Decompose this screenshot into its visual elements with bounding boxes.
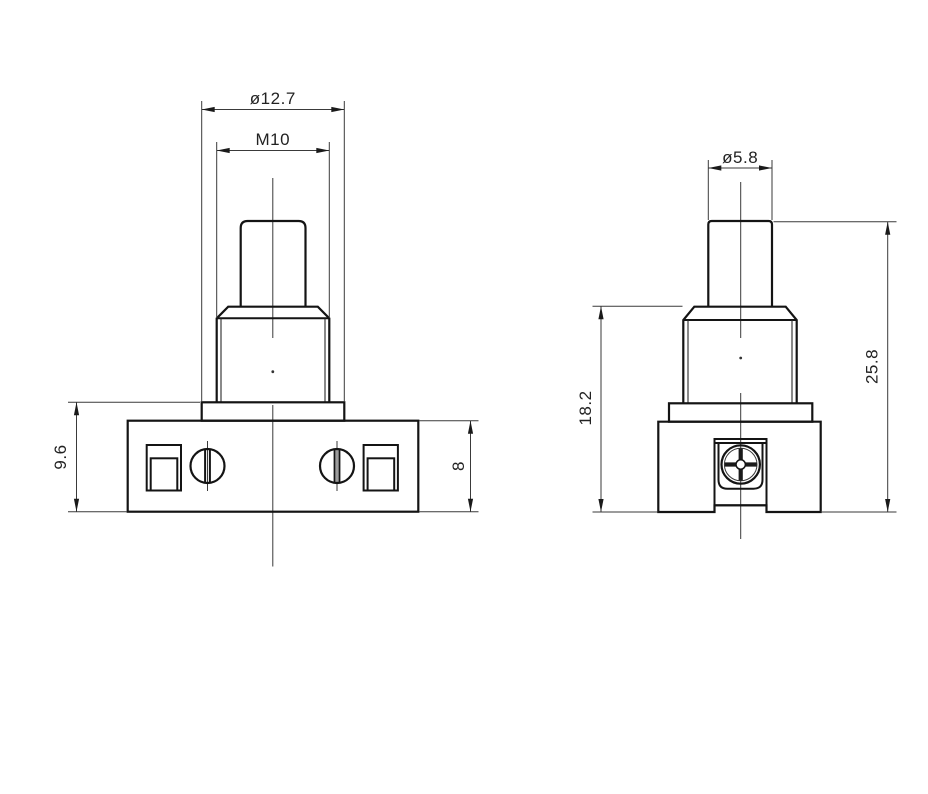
front-screw-left xyxy=(191,441,225,491)
technical-drawing: ø12.7 M10 9.6 8 xyxy=(0,0,928,794)
dim-shoulder-height: 9.6 xyxy=(51,402,200,511)
side-centerline xyxy=(739,182,742,539)
dim-button-diameter: ø5.8 xyxy=(708,148,772,220)
side-threaded-bushing xyxy=(683,307,796,404)
dim-label-shoulder-height: 9.6 xyxy=(51,444,70,469)
dim-label-base-height: 8 xyxy=(449,461,468,471)
dim-label-total-height: 25.8 xyxy=(863,349,882,384)
front-screw-right xyxy=(320,441,354,491)
dim-label-thread: M10 xyxy=(256,130,291,149)
front-terminal-right xyxy=(364,445,398,491)
side-view: ø5.8 18.2 25.8 xyxy=(576,148,897,539)
front-terminal-left xyxy=(147,445,181,491)
dim-base-height: 8 xyxy=(420,421,479,512)
dim-label-button-diameter: ø5.8 xyxy=(722,148,758,167)
side-phillips-screw xyxy=(722,445,760,483)
dim-body-height: 18.2 xyxy=(576,306,683,512)
dim-label-body-height: 18.2 xyxy=(576,390,595,425)
front-centerline xyxy=(271,178,274,567)
side-button-outline xyxy=(708,221,772,307)
dim-label-flange-diameter: ø12.7 xyxy=(250,89,296,108)
front-view: ø12.7 M10 9.6 8 xyxy=(51,89,479,567)
